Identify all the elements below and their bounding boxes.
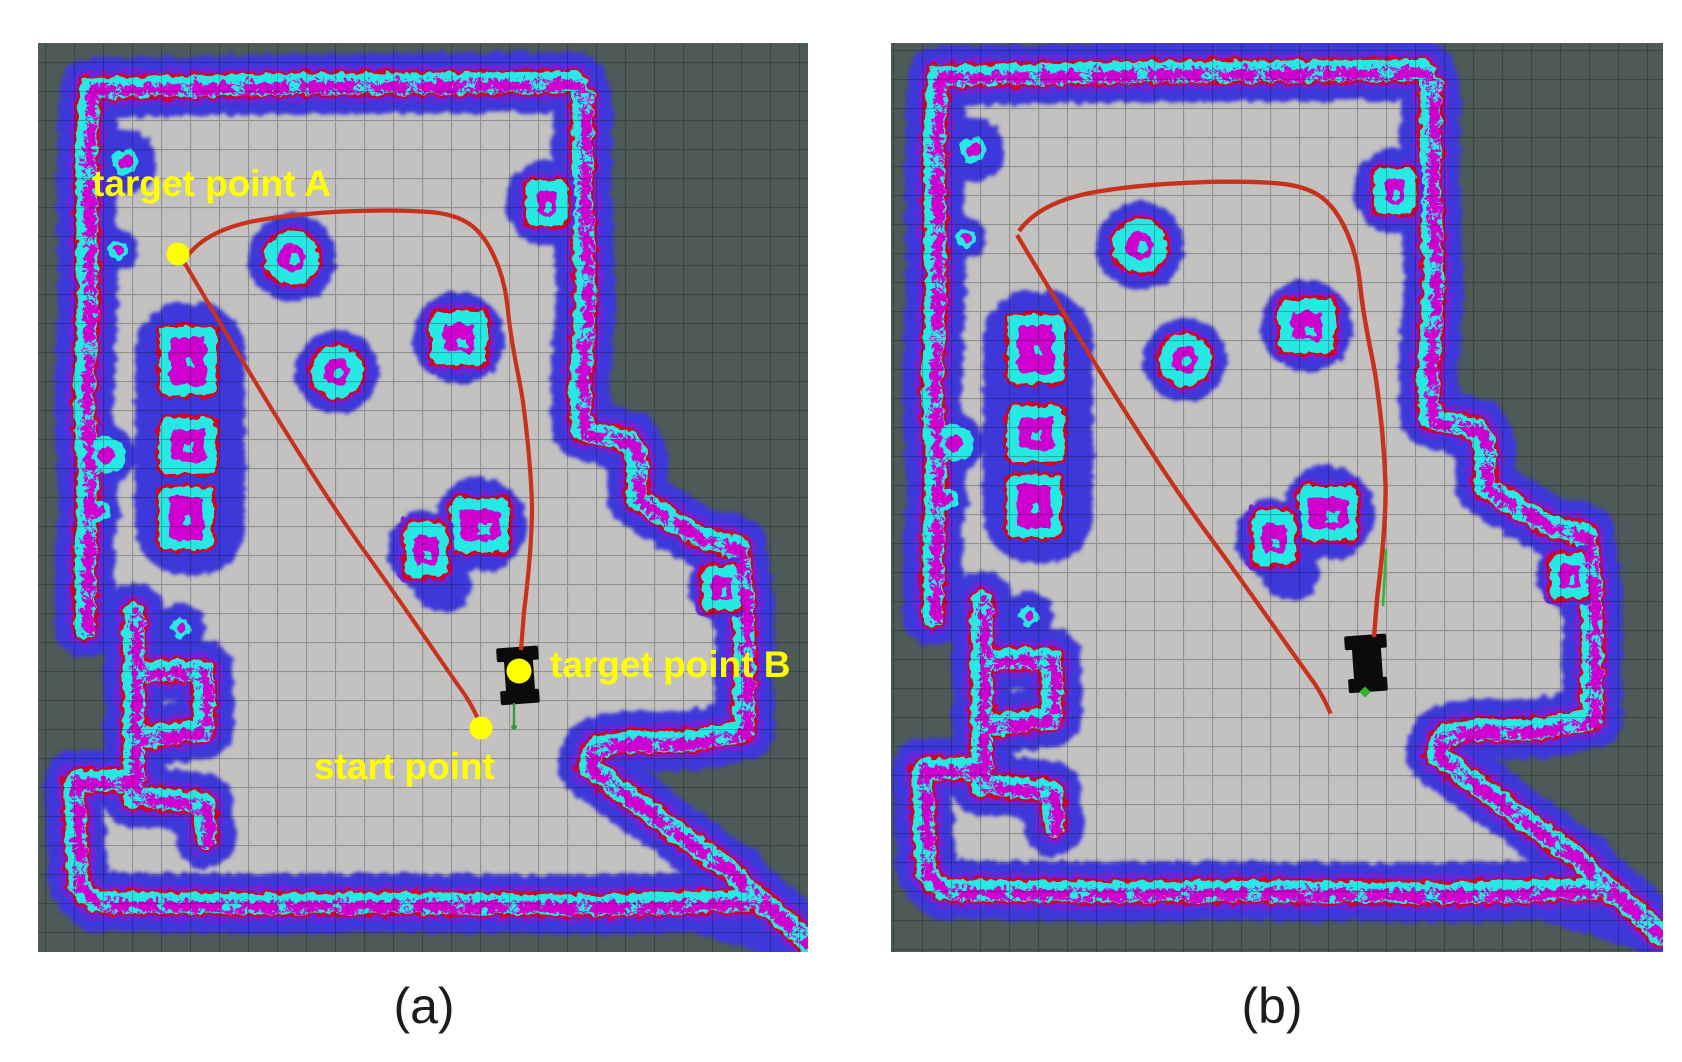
svg-text:(a): (a) bbox=[393, 978, 454, 1034]
svg-text:(b): (b) bbox=[1241, 978, 1302, 1034]
svg-text:start point: start point bbox=[314, 746, 495, 787]
svg-text:target point B: target point B bbox=[550, 644, 790, 685]
svg-text:target point A: target point A bbox=[92, 163, 331, 204]
